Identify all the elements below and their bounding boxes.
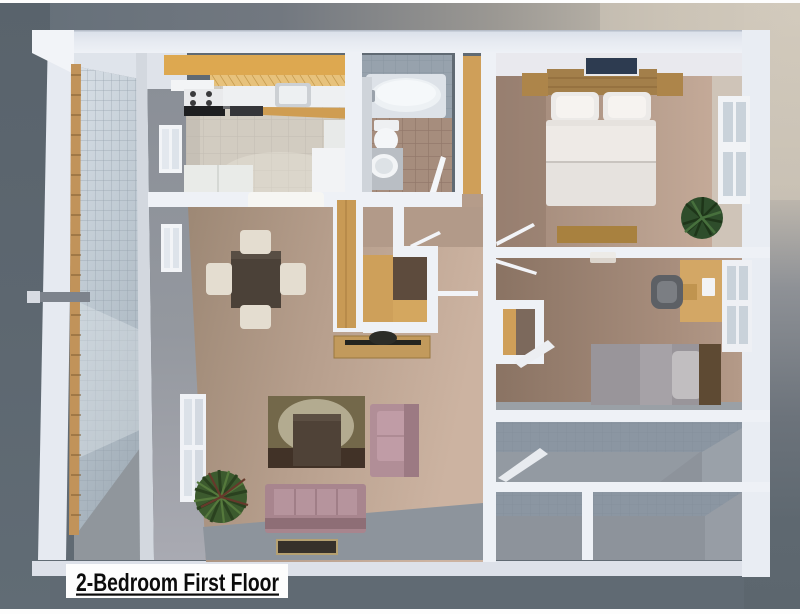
svg-text:2-Bedroom First Floor: 2-Bedroom First Floor bbox=[76, 569, 279, 597]
